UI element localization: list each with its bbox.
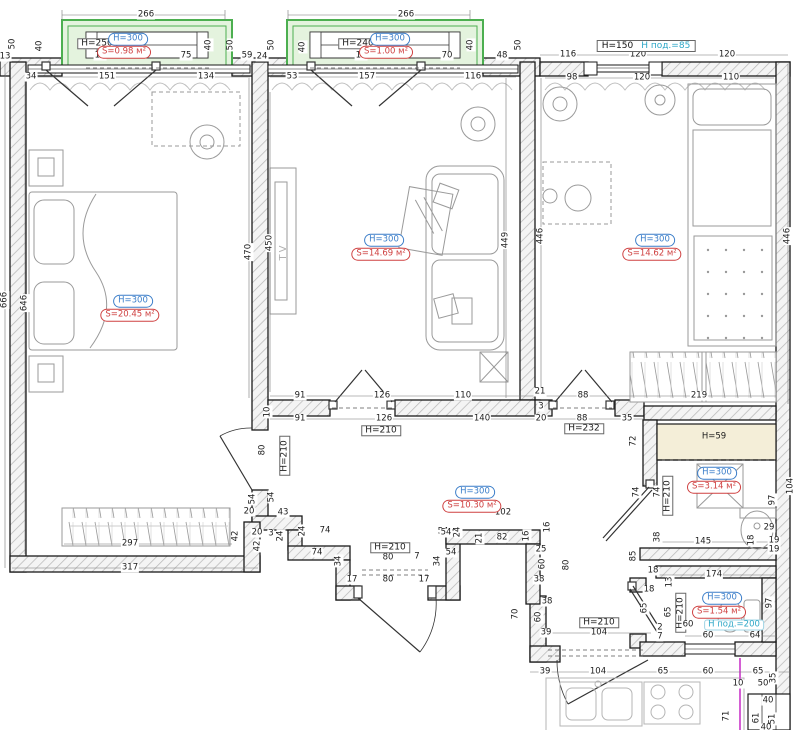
wardrobe-bottom — [62, 508, 230, 546]
plan-drawing — [0, 0, 796, 730]
ceiling-fan — [461, 107, 495, 141]
window-spec-label: H=150 Н под.=85 — [597, 40, 696, 52]
vent-shaft — [657, 424, 776, 460]
tv-unit — [270, 168, 296, 314]
window-sill-label: Н под.=85 — [641, 41, 690, 51]
balcony-1-outline — [62, 20, 232, 72]
desk — [543, 162, 611, 224]
floor-plan: 266501340H=25015754050593415113426650244… — [0, 0, 796, 730]
kitchen-sink — [560, 682, 642, 726]
chair-1 — [190, 125, 224, 159]
sofa — [426, 166, 504, 350]
wardrobe-2 — [630, 352, 776, 402]
wardrobe-dashed — [152, 92, 240, 146]
nightstand-1 — [29, 150, 63, 186]
duct-box — [748, 694, 790, 730]
stool — [645, 85, 675, 115]
toilet-bowl — [718, 600, 742, 632]
toilet-tank — [744, 600, 760, 632]
doors — [42, 62, 662, 704]
window-height-label: H=150 — [602, 41, 634, 51]
chair-2 — [543, 87, 577, 121]
nightstand-2 — [29, 356, 63, 392]
bed-1 — [29, 192, 177, 350]
desk-chair — [565, 185, 591, 211]
kitchen-counter — [546, 678, 744, 730]
balcony-2-outline — [287, 20, 483, 72]
